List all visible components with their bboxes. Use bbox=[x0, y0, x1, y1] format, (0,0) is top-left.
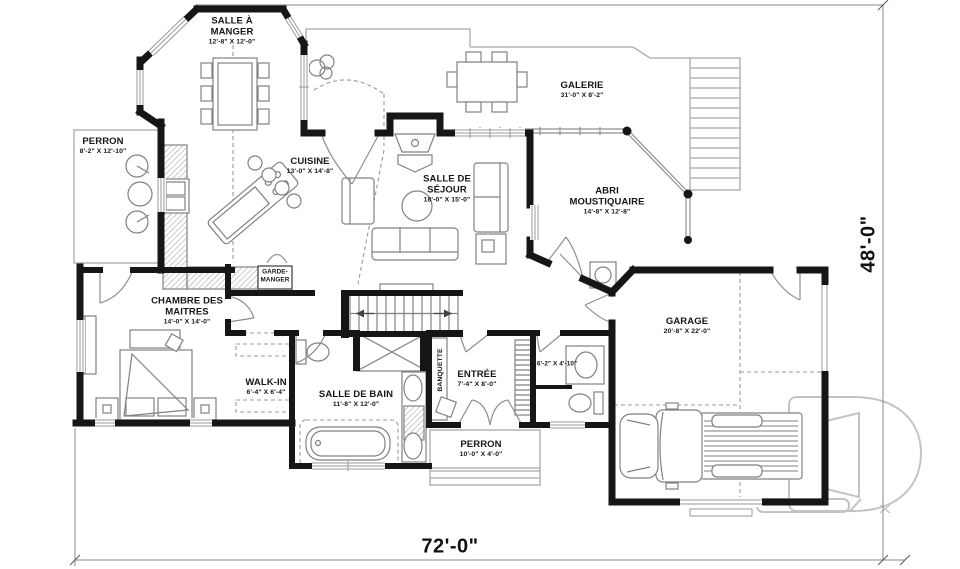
room-name: SALLE DE BAIN bbox=[301, 389, 411, 400]
room-dims: 11'-8" X 12'-0" bbox=[301, 401, 411, 409]
room-name: PERRON bbox=[58, 136, 148, 147]
room-dims: 10'-0" X 4'-0" bbox=[436, 451, 526, 459]
room-name: ENTRÉE bbox=[437, 369, 517, 380]
door-hall-garage bbox=[585, 293, 612, 323]
nightstand bbox=[96, 398, 118, 420]
room-label-salle-eau-dims: 6'-2" X 4'-10" bbox=[527, 360, 587, 369]
dining-table bbox=[201, 58, 269, 130]
galerie-table bbox=[447, 52, 527, 112]
room-name: GARDE-MANGER bbox=[258, 269, 292, 286]
room-name: SALLE DE SÉJOUR bbox=[412, 173, 482, 195]
room-dims: 18'-0" X 15'-0" bbox=[412, 197, 482, 205]
nightstand bbox=[194, 398, 216, 420]
room-dims: 14'-8" X 12'-8" bbox=[557, 209, 657, 217]
room-label-walk-in: WALK-IN 6'-4" X 6'-4" bbox=[231, 377, 301, 397]
perron-table-chairs bbox=[126, 155, 152, 233]
island-stool bbox=[275, 181, 289, 195]
floor-plan-page: SALLE À MANGER 12'-8" X 12'-0" PERRON 8'… bbox=[0, 0, 960, 569]
garage-door-track bbox=[690, 509, 752, 516]
bathroom-vanity bbox=[402, 372, 426, 462]
room-name: ABRI MOUSTIQUAIRE bbox=[557, 185, 657, 207]
room-name: CUISINE bbox=[255, 156, 365, 167]
sofa bbox=[372, 228, 458, 260]
room-label-galerie: GALERIE 31'-0" X 8'-2" bbox=[527, 80, 637, 100]
room-dims: 6'-2" X 4'-10" bbox=[527, 361, 587, 369]
overall-height-dimension: 48'-0" bbox=[858, 215, 881, 272]
room-name: WALK-IN bbox=[231, 377, 301, 388]
entry-closet bbox=[515, 340, 531, 415]
door-sejour-abri bbox=[548, 237, 583, 278]
room-label-chambre-des-maitres: CHAMBRE DES MAITRES 14'-0" X 14'-0" bbox=[144, 295, 230, 326]
overall-width-dimension: 72'-0" bbox=[421, 536, 478, 559]
pickup-truck bbox=[620, 403, 802, 489]
room-name: PERRON bbox=[436, 439, 526, 450]
room-dims: 8'-2" X 12'-10" bbox=[58, 148, 148, 156]
room-label-cuisine: CUISINE 13'-0" X 14'-8" bbox=[255, 156, 365, 176]
door-perron-bedroom bbox=[100, 270, 133, 303]
room-label-garage: GARAGE 20'-8" X 22'-0" bbox=[637, 316, 737, 336]
room-dims: 12'-8" X 12'-0" bbox=[196, 39, 268, 47]
armchair bbox=[342, 178, 374, 224]
door-hall-powder bbox=[537, 333, 563, 352]
room-name: GALERIE bbox=[527, 80, 637, 91]
room-name: CHAMBRE DES MAITRES bbox=[144, 295, 230, 317]
room-label-salle-a-manger: SALLE À MANGER 12'-8" X 12'-0" bbox=[196, 15, 268, 46]
room-dims: 14'-0" X 14'-0" bbox=[144, 319, 230, 327]
room-label-entree: ENTRÉE 7'-4" X 8'-0" bbox=[437, 369, 517, 389]
room-dims: 13'-0" X 14'-8" bbox=[255, 168, 365, 176]
plant bbox=[309, 55, 334, 79]
galerie-stairs bbox=[690, 58, 740, 190]
room-label-abri-moustiquaire: ABRI MOUSTIQUAIRE 14'-8" X 12'-8" bbox=[557, 185, 657, 216]
door-hall-entree bbox=[460, 333, 490, 352]
room-dims: 31'-0" X 8'-2" bbox=[527, 92, 637, 100]
island-stool bbox=[287, 194, 301, 208]
fireplace bbox=[395, 134, 435, 172]
powder-toilet bbox=[569, 392, 603, 414]
door-abri-garage bbox=[770, 270, 800, 300]
bathtub bbox=[306, 427, 390, 460]
door-hall-bedroom bbox=[228, 296, 254, 322]
room-dims: 6'-4" X 6'-4" bbox=[231, 389, 301, 397]
shower-box bbox=[357, 333, 427, 371]
floor-plan-drawing bbox=[0, 0, 960, 569]
room-label-garde-manger: GARDE-MANGER bbox=[258, 269, 292, 286]
room-name: SALLE À MANGER bbox=[196, 15, 268, 37]
room-label-perron-lower: PERRON 10'-0" X 4'-0" bbox=[436, 439, 526, 459]
side-table bbox=[476, 234, 506, 264]
room-label-perron-upper: PERRON 8'-2" X 12'-10" bbox=[58, 136, 148, 156]
bed bbox=[120, 350, 192, 420]
room-label-salle-de-bain: SALLE DE BAIN 11'-8" X 12'-0" bbox=[301, 389, 411, 409]
front-double-door bbox=[458, 400, 522, 425]
room-dims: 20'-8" X 22'-0" bbox=[637, 328, 737, 336]
room-name: GARAGE bbox=[637, 316, 737, 327]
room-dims: 7'-4" X 8'-0" bbox=[437, 381, 517, 389]
room-label-salle-de-sejour: SALLE DE SÉJOUR 18'-0" X 15'-0" bbox=[412, 173, 482, 204]
